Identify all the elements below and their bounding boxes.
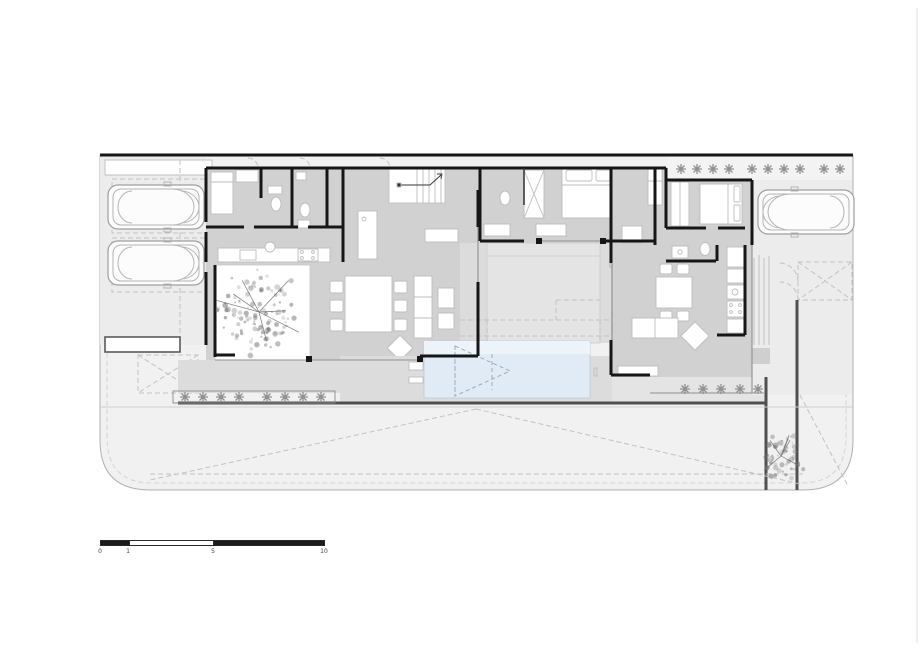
kitchen-sink xyxy=(240,250,256,260)
fridge xyxy=(727,247,744,267)
toilet-icon xyxy=(700,243,710,256)
scale-bar-segment xyxy=(129,541,214,545)
plant-icon xyxy=(779,164,789,174)
stove xyxy=(727,301,744,317)
kitchen-island xyxy=(358,211,377,259)
plant-icon xyxy=(795,164,805,174)
floor-plan-sheet: 0 1 5 10 xyxy=(0,0,920,651)
plant-icon xyxy=(198,392,208,402)
scale-label: 1 xyxy=(126,548,130,556)
plant-icon xyxy=(676,164,686,174)
plant-icon xyxy=(708,164,718,174)
single-bed xyxy=(211,172,233,214)
car-icon xyxy=(108,238,204,288)
vanity xyxy=(484,224,510,236)
plant-icon xyxy=(216,392,226,402)
plant-icon xyxy=(763,164,773,174)
plant-icon xyxy=(819,164,829,174)
dining-table xyxy=(345,276,392,332)
car-icon xyxy=(758,187,854,237)
scale-bar-segment xyxy=(214,541,324,545)
toilet-icon xyxy=(300,203,310,217)
dining-area xyxy=(330,276,407,332)
toilet-icon xyxy=(500,191,510,205)
plant-icon xyxy=(234,392,244,402)
plant-icon xyxy=(747,164,757,174)
garden-wall xyxy=(105,337,180,352)
scale-label: 5 xyxy=(211,548,215,556)
console-table xyxy=(425,229,458,242)
scale-label: 0 xyxy=(98,548,102,556)
toilet-icon xyxy=(271,197,281,211)
right-wing xyxy=(611,167,766,403)
plant-icon xyxy=(316,392,326,402)
terrace xyxy=(460,243,632,343)
scale-bar-segment xyxy=(101,541,129,545)
kitchen-right xyxy=(727,247,744,333)
kitchen-sink xyxy=(727,285,744,299)
pool-ladder xyxy=(409,362,423,370)
vanity xyxy=(672,246,688,258)
plant-icon xyxy=(835,164,845,174)
scale-bar xyxy=(100,540,325,546)
dining-table xyxy=(656,277,692,308)
plant-icon xyxy=(180,392,190,402)
ottoman xyxy=(438,313,454,329)
site-plan-drawing xyxy=(0,0,920,651)
plant-icon xyxy=(298,392,308,402)
plant-icon xyxy=(724,164,734,174)
planter-box xyxy=(105,160,212,175)
pool xyxy=(409,341,597,398)
bench xyxy=(536,224,566,236)
plant-icon xyxy=(692,164,702,174)
armchair xyxy=(438,288,454,308)
plant-icon xyxy=(262,392,272,402)
plant-icon xyxy=(280,392,290,402)
sofa xyxy=(414,276,432,338)
plant-row-top xyxy=(668,157,852,180)
sink xyxy=(268,186,282,194)
car-icon xyxy=(108,182,204,232)
scale-label: 10 xyxy=(320,548,328,556)
